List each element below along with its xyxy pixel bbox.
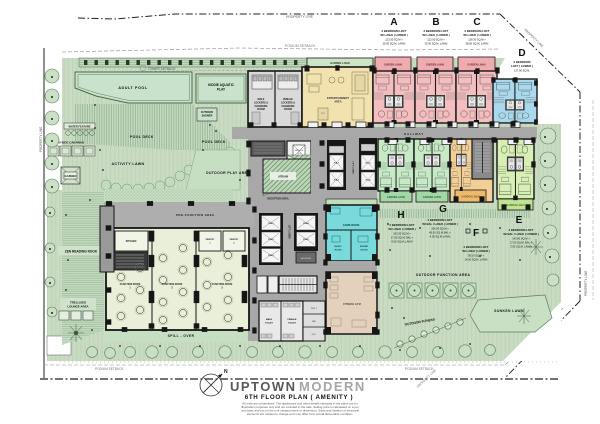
svg-text:ZEN READING NOOK: ZEN READING NOOK (65, 250, 98, 254)
svg-text:PANTRY: PANTRY (230, 238, 239, 241)
svg-text:GARDEN LANAI: GARDEN LANAI (506, 204, 525, 207)
svg-text:P.A.3: P.A.3 (268, 254, 274, 257)
svg-text:SUNKEN LAWN: SUNKEN LAWN (494, 309, 524, 313)
svg-text:3.00 SQ.M. LANAI: 3.00 SQ.M. LANAI (510, 245, 532, 249)
svg-text:14.50 SQ.M. LANAI: 14.50 SQ.M. LANAI (465, 258, 488, 262)
svg-text:25.00 SQ.M. LANAI: 25.00 SQ.M. LANAI (425, 42, 448, 46)
svg-text:POOL DECK: POOL DECK (202, 140, 226, 144)
svg-text:25.00 SQ.M. LANAI: 25.00 SQ.M. LANAI (383, 42, 406, 46)
svg-text:GARDEN LANAI: GARDEN LANAI (426, 64, 445, 67)
svg-text:JAN.: JAN. (312, 320, 317, 323)
svg-text:ROOM: ROOM (335, 249, 342, 251)
svg-text:PROPERTY LINE: PROPERTY LINE (584, 271, 588, 296)
svg-text:ENTERTAINMENT: ENTERTAINMENT (327, 96, 349, 100)
svg-text:8.50 SQ.M. LANAI: 8.50 SQ.M. LANAI (391, 240, 413, 244)
svg-text:LOUNGE AREA: LOUNGE AREA (67, 305, 89, 309)
svg-text:128.30 SQ.M +: 128.30 SQ.M + (468, 38, 486, 42)
svg-text:123.30 SQ.M +: 123.30 SQ.M + (385, 38, 403, 42)
svg-text:106.50 SQ.M +: 106.50 SQ.M + (431, 227, 449, 231)
svg-text:ATRIUM: ATRIUM (278, 175, 288, 179)
svg-text:4.00 SQ.M LANAI: 4.00 SQ.M LANAI (430, 235, 451, 239)
svg-text:143.80 SQ.M +: 143.80 SQ.M + (512, 237, 530, 241)
svg-text:GARDEN LANAI: GARDEN LANAI (461, 196, 480, 199)
svg-text:GARDEN LANAI: GARDEN LANAI (467, 64, 486, 67)
svg-text:A: A (390, 17, 397, 28)
svg-text:UPTOWN: UPTOWN (230, 379, 297, 394)
svg-text:FITNESS GYM: FITNESS GYM (343, 302, 361, 306)
svg-text:LOFT ( LOWER ): LOFT ( LOWER ) (511, 64, 533, 68)
svg-text:SHOWER: SHOWER (202, 115, 213, 118)
svg-text:W/ LANAI ( LOWER ): W/ LANAI ( LOWER ) (462, 249, 489, 253)
svg-text:P.A.1: P.A.1 (268, 222, 274, 225)
svg-text:elements are subject to change: elements are subject to change and may d… (247, 412, 353, 416)
svg-text:OUTDOOR PLAY AREA: OUTDOOR PLAY AREA (206, 171, 250, 175)
svg-text:103.00 SQ.M +: 103.00 SQ.M + (393, 232, 411, 236)
svg-text:W/ BAL / LANAI ( LOWER ): W/ BAL / LANAI ( LOWER ) (503, 232, 538, 236)
svg-text:P.A.4: P.A.4 (303, 222, 309, 225)
svg-text:GARDEN LANAI: GARDEN LANAI (387, 196, 406, 199)
svg-text:MODERN: MODERN (299, 379, 366, 394)
svg-text:TOWER SETBACK: TOWER SETBACK (148, 67, 176, 71)
svg-text:137.90 SQ.M.: 137.90 SQ.M. (514, 69, 530, 73)
svg-text:ROOM: ROOM (284, 108, 291, 111)
svg-text:ROOM: ROOM (361, 249, 368, 251)
svg-text:PLAY: PLAY (217, 88, 226, 92)
svg-text:W/ LANAI ( LOWER ): W/ LANAI ( LOWER ) (422, 33, 449, 37)
svg-text:ROOM: ROOM (257, 108, 264, 111)
svg-text:W/ LANAI ( LOWER ): W/ LANAI ( LOWER ) (388, 227, 415, 231)
svg-text:HALLWAY: HALLWAY (404, 132, 424, 136)
svg-text:17.00 SQ.M. BAL +: 17.00 SQ.M. BAL + (510, 241, 533, 245)
svg-text:LIFT LOBBY: LIFT LOBBY (288, 225, 291, 239)
svg-text:TOILET: TOILET (265, 322, 273, 324)
svg-text:GARDEN LANAI: GARDEN LANAI (330, 61, 350, 65)
svg-text:KIDDIE AQUATIC: KIDDIE AQUATIC (208, 83, 235, 87)
svg-text:LIFT LOBBY: LIFT LOBBY (352, 162, 354, 175)
svg-text:17.00 SQ.M. BAL +: 17.00 SQ.M. BAL + (391, 236, 414, 240)
svg-text:45.00 SQ.M BAL +: 45.00 SQ.M BAL + (429, 231, 451, 235)
svg-text:ACTIVITY LAWN: ACTIVITY LAWN (111, 162, 144, 166)
svg-text:P.A.5: P.A.5 (303, 238, 309, 241)
svg-text:SERVICE: SERVICE (295, 150, 304, 152)
svg-text:RECEPTION AREA: RECEPTION AREA (267, 198, 289, 201)
svg-text:PWD T.: PWD T. (311, 308, 318, 310)
svg-text:AREA: AREA (334, 100, 341, 104)
svg-text:B: B (432, 17, 439, 28)
svg-text:PODIUM SETBACK: PODIUM SETBACK (95, 367, 124, 371)
svg-text:FEMALE: FEMALE (288, 318, 298, 321)
svg-text:PODIUM SETBACK: PODIUM SETBACK (405, 367, 434, 371)
svg-text:GARDEN LANAI: GARDEN LANAI (423, 196, 442, 199)
svg-text:TOILET: TOILET (288, 322, 296, 324)
svg-text:MUSIC: MUSIC (334, 246, 341, 248)
svg-text:F: F (473, 228, 479, 239)
svg-text:H: H (397, 210, 404, 221)
svg-text:DAYBED CABANAS: DAYBED CABANAS (56, 141, 84, 145)
svg-text:W/ LANAI ( LOWER ): W/ LANAI ( LOWER ) (380, 33, 407, 37)
svg-text:WATER FEATURE: WATER FEATURE (69, 125, 91, 129)
svg-text:6TH FLOOR PLAN ( AMENITY ): 6TH FLOOR PLAN ( AMENITY ) (245, 394, 354, 401)
svg-text:GAZEBO: GAZEBO (65, 174, 78, 178)
svg-text:UTIL.: UTIL. (312, 334, 317, 336)
svg-text:PODIUM SETBACK: PODIUM SETBACK (285, 44, 316, 48)
svg-text:122.00 SQ.M +: 122.00 SQ.M + (427, 38, 445, 42)
svg-text:KTV: KTV (321, 113, 326, 115)
svg-text:D: D (518, 48, 525, 59)
svg-text:PROPERTY LINE: PROPERTY LINE (286, 15, 314, 19)
svg-text:38.50 SQ.M. LANAI: 38.50 SQ.M. LANAI (466, 42, 489, 46)
svg-text:G: G (439, 204, 447, 215)
svg-text:POOL DECK: POOL DECK (130, 135, 154, 139)
svg-text:95.50 SQ.M +: 95.50 SQ.M + (468, 254, 485, 258)
svg-text:N: N (224, 369, 228, 375)
svg-text:W/ LANAI ( LOWER ): W/ LANAI ( LOWER ) (463, 33, 490, 37)
svg-text:BOARD: BOARD (360, 245, 368, 248)
svg-text:SPILL - OVER: SPILL - OVER (168, 334, 195, 338)
svg-text:C: C (473, 17, 480, 28)
svg-text:GARDEN LANAI: GARDEN LANAI (384, 64, 403, 67)
svg-text:MALE: MALE (266, 318, 273, 321)
svg-text:PANTRY: PANTRY (206, 238, 215, 241)
svg-text:PRE-FUNCTION AREA: PRE-FUNCTION AREA (176, 213, 215, 217)
svg-text:ADULT POOL: ADULT POOL (118, 86, 148, 90)
svg-text:W/ BAL / LANAI ( LOWER ): W/ BAL / LANAI ( LOWER ) (422, 222, 457, 226)
svg-text:P.A.2: P.A.2 (268, 238, 274, 241)
svg-text:E: E (516, 215, 523, 226)
svg-text:OUTDOOR FUNCTION AREA: OUTDOOR FUNCTION AREA (416, 273, 471, 277)
svg-text:KITCHEN: KITCHEN (126, 240, 137, 243)
svg-text:GAME ROOM: GAME ROOM (343, 223, 360, 227)
svg-text:AC ROOM: AC ROOM (301, 257, 311, 260)
svg-text:PROPERTY LINE: PROPERTY LINE (39, 127, 43, 152)
